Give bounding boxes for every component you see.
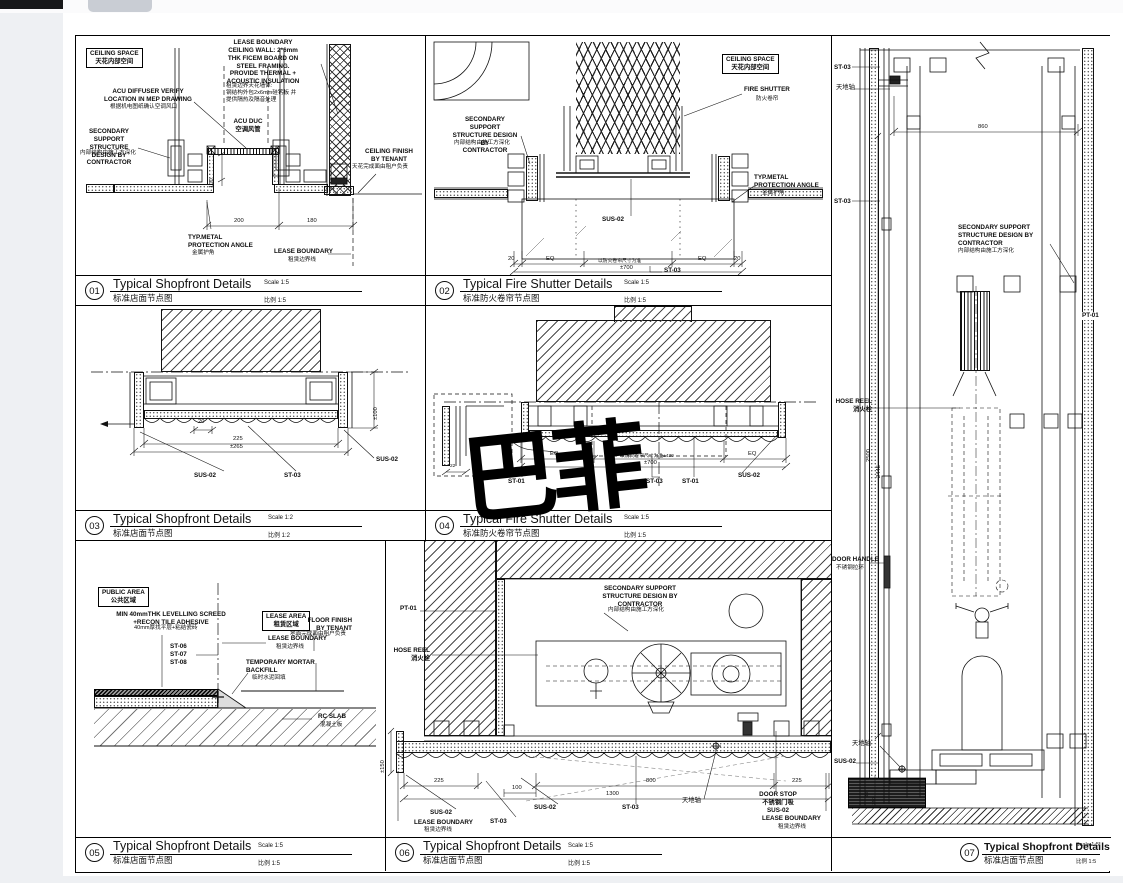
panel-03-title-cn: 标准店面节点图 <box>113 527 173 539</box>
panel-02-scale: Scale 1:5 <box>624 280 649 286</box>
detail-panel-02: CEILING SPACE 天花内部空间 FIRE SHUTTER 防火卷帘 S… <box>426 36 831 306</box>
label-rc-slab-cn: 混凝土板 <box>320 722 342 729</box>
panel-05-scale-cn: 比例 1:5 <box>258 858 280 867</box>
label-rc-slab: RC SLAB <box>318 713 346 721</box>
panel-02-drawing: CEILING SPACE 天花内部空间 FIRE SHUTTER 防火卷帘 S… <box>426 36 831 305</box>
panel-01-titlebar: 01 Typical Shopfront Details 标准店面节点图 Sca… <box>76 275 425 305</box>
label-fire-shutter: FIRE SHUTTER <box>744 86 790 94</box>
label-lease-boundary-right-cn: 租赁边界线 <box>778 824 806 831</box>
label-lease-wall-note-cn: 租赁边界天花墙体: 钢结构外包2x6mm硅钙板 并 提供隔热及隔音处理 <box>226 83 326 104</box>
dim-40: 40 <box>865 792 870 797</box>
label-st-01-right: ST-01 <box>682 478 699 486</box>
browser-chrome-remnant <box>0 0 1123 13</box>
panel-05-title: Typical Shopfront Details <box>113 839 251 853</box>
panel-07-scale: Scale 1:5 <box>1076 842 1099 848</box>
panel-03-scale: Scale 1:2 <box>268 515 293 521</box>
label-st-03: ST-03 <box>664 267 681 275</box>
label-sus-02-far-left: SUS-02 <box>430 809 452 817</box>
panel-06-titlebar: 06 Typical Shopfront Details 标准店面节点图 Sca… <box>386 837 831 871</box>
label-temporary-mortar-cn: 临时水泥回填 <box>252 675 286 682</box>
panel-02-title-cn: 标准防火卷帘节点图 <box>463 292 540 304</box>
label-secondary-support-cn: 内部结构由施工方深化 <box>958 248 1014 255</box>
panel-02-title: Typical Fire Shutter Details <box>463 277 612 291</box>
detail-panel-06: PT-01 HOSE REEL 消火栓 SECONDARY SUPPORT ST… <box>386 541 831 871</box>
panel-01-number: 01 <box>85 281 104 300</box>
panel-06-scale: Scale 1:5 <box>568 843 593 849</box>
label-pivot: 天地轴 <box>682 797 701 805</box>
panel-07-titlebar: 07 Typical Shopfront Details 标准店面节点图 Sca… <box>832 837 1111 871</box>
panel-05-titlebar: 05 Typical Shopfront Details 标准店面节点图 Sca… <box>76 837 385 871</box>
dim-1300: 1300 <box>606 791 619 797</box>
label-secondary-support-cn: 内部结构由施工方深化 <box>454 140 510 147</box>
panel-06-title: Typical Shopfront Details <box>423 839 561 853</box>
label-lease-boundary-cn: 租赁边界线 <box>276 644 304 651</box>
panel-01-title: Typical Shopfront Details <box>113 277 251 291</box>
label-acu-diffuser-cn: 根据机电图纸确认空调风口 <box>110 104 177 111</box>
detail-panel-05: PUBLIC AREA 公共区域 LEASE AREA 租赁区域 MIN 40m… <box>76 541 386 871</box>
dim-total-700: ±700 <box>644 460 657 466</box>
dim-inset-22: 22 <box>450 464 455 469</box>
detail-panel-07: ST-03 天地轴 ST-03 SECONDARY SUPPORT STRUCT… <box>831 36 1111 871</box>
panel-04-number: 04 <box>435 516 454 535</box>
label-ceiling-finish-cn: 天花完成面由租户负责 <box>352 164 408 171</box>
dim-225-right: 225 <box>792 778 802 784</box>
label-door-stop: DOOR STOP 不锈钢门吸 SUS-02 <box>746 791 810 815</box>
detail-panel-01: CEILING SPACE 天花内部空间 LEASE BOUNDARY CEIL… <box>76 36 426 306</box>
dim-20: 20 <box>198 419 204 425</box>
dim-265: ±265 <box>230 444 243 450</box>
label-sus-02-left: SUS-02 <box>534 804 556 812</box>
label-typ-metal-angle-cn: 金属护角 <box>762 190 784 197</box>
dim-20-right: 20 <box>734 256 740 262</box>
label-temporary-mortar: TEMPORARY MORTAR BACKFILL <box>246 659 315 675</box>
label-st-03-left: ST-03 <box>490 818 507 826</box>
panel-03-drawing: SUS-02 ST-03 SUS-02 20 225 ±265 ±100 <box>76 306 425 540</box>
dim-860: 860 <box>978 124 988 130</box>
label-lease-boundary-ceiling-wall: LEASE BOUNDARY CEILING WALL: 2*6mm THK F… <box>204 39 322 86</box>
panel-02-titlebar: 02 Typical Fire Shutter Details 标准防火卷帘节点… <box>426 275 831 305</box>
label-secondary-support: SECONDARY SUPPORT STRUCTURE DESIGN BY CO… <box>78 128 140 167</box>
label-st-03-center: ST-03 <box>622 804 639 812</box>
dim-200: 200 <box>234 218 244 224</box>
cad-detail-sheet-page: { "watermark": "巴菲", "shared": { "sus02"… <box>0 0 1123 883</box>
panel-05-number: 05 <box>85 843 104 862</box>
dim-2500: 2500 <box>866 449 872 462</box>
label-st-03-mid: ST-03 <box>834 198 851 206</box>
label-typ-metal-angle: TYP.METAL PROTECTION ANGLE <box>188 234 253 250</box>
label-sus-02: SUS-02 <box>738 472 760 480</box>
panel-05-title-cn: 标准店面节点图 <box>113 854 173 866</box>
label-st-03-top: ST-03 <box>834 64 851 72</box>
label-secondary-support-cn: 内部结构由施工方深化 <box>80 150 136 157</box>
label-ceiling-space: CEILING SPACE 天花内部空间 <box>722 54 779 74</box>
label-public-area: PUBLIC AREA 公共区域 <box>98 587 149 607</box>
dim-eq-right: EQ <box>748 451 756 457</box>
dim-shutter-note: 以防火卷帘尺寸为准 <box>598 257 641 264</box>
label-sus-02: SUS-02 <box>834 758 856 766</box>
label-pt-01: PT-01 <box>400 605 417 613</box>
dim-225: 225 <box>233 436 243 442</box>
window-control-strip <box>0 0 63 9</box>
label-lease-boundary: LEASE BOUNDARY <box>274 248 333 256</box>
browser-tab[interactable] <box>88 0 152 12</box>
calligraphy-watermark: 巴菲 <box>457 416 646 530</box>
dim-100: ±100 <box>373 407 379 420</box>
label-hose-reel: HOSE REEL 消火栓 <box>832 398 872 414</box>
panel-05-scale: Scale 1:5 <box>258 843 283 849</box>
panel-06-scale-cn: 比例 1:5 <box>568 858 590 867</box>
label-floor-finish-cn: 地面完成面由租户负责 <box>290 631 346 638</box>
label-acu-diffuser: ACU DIFFUSER VERIFY LOCATION IN MEP DRAW… <box>102 88 194 104</box>
label-secondary-support-cn: 内部结构由施工方深化 <box>608 607 664 614</box>
dim-eq-left: EQ <box>546 256 554 262</box>
label-st-03: ST-03 <box>284 472 301 480</box>
label-hose-reel: HOSE REEL 消火栓 <box>386 647 430 663</box>
label-lease-boundary-left: LEASE BOUNDARY <box>414 819 473 827</box>
panel-07-drawing: ST-03 天地轴 ST-03 SECONDARY SUPPORT STRUCT… <box>832 36 1111 871</box>
label-secondary-support: SECONDARY SUPPORT STRUCTURE DESIGN BY CO… <box>584 585 696 609</box>
panel-06-number: 06 <box>395 843 414 862</box>
panel-05-drawing: PUBLIC AREA 公共区域 LEASE AREA 租赁区域 MIN 40m… <box>76 541 385 871</box>
panel-07-number: 07 <box>960 843 979 862</box>
label-fire-shutter-cn: 防火卷帘 <box>756 96 778 103</box>
dim-eq-right: EQ <box>698 256 706 262</box>
label-ceiling-finish: CEILING FINISH BY TENANT <box>358 148 420 164</box>
dim-180: 180 <box>307 218 317 224</box>
label-st-03: ST-03 <box>646 478 663 486</box>
panel-03-titlebar: 03 Typical Shopfront Details 标准店面节点图 Sca… <box>76 510 425 540</box>
label-pivot-top: 天地轴 <box>836 84 855 92</box>
label-acu-duct: ACU DUC 空调风管 <box>226 118 270 134</box>
label-lease-boundary-cn: 租赁边界线 <box>288 257 316 264</box>
label-st-06-07-08: ST-06 ST-07 ST-08 <box>170 643 187 667</box>
label-secondary-support: SECONDARY SUPPORT STRUCTURE DESIGN BY CO… <box>450 116 520 155</box>
label-typ-metal-angle-cn: 金属护角 <box>192 250 214 257</box>
panel-07-title-cn: 标准店面节点图 <box>984 854 1044 866</box>
panel-02-scale-cn: 比例 1:5 <box>624 295 646 304</box>
panel-01-title-cn: 标准店面节点图 <box>113 292 173 304</box>
dim-total-700: ±700 <box>620 265 633 271</box>
panel-06-title-cn: 标准店面节点图 <box>423 854 483 866</box>
label-ceiling-space: CEILING SPACE 天花内部空间 <box>86 48 143 68</box>
detail-panel-03: SUS-02 ST-03 SUS-02 20 225 ±265 ±100 03 … <box>76 306 426 541</box>
dim-20-left: 20 <box>508 256 514 262</box>
dim-100: 100 <box>512 785 522 791</box>
dim-150: ±150 <box>380 760 386 773</box>
label-secondary-support: SECONDARY SUPPORT STRUCTURE DESIGN BY CO… <box>958 224 1050 248</box>
panel-06-drawing: PT-01 HOSE REEL 消火栓 SECONDARY SUPPORT ST… <box>386 541 831 871</box>
dim-100: 100 <box>209 178 215 188</box>
panel-03-title: Typical Shopfront Details <box>113 512 251 526</box>
label-pivot-bottom: 天地轴 <box>852 740 871 748</box>
panel-01-scale-cn: 比例 1:5 <box>264 295 286 304</box>
panel-03-number: 03 <box>85 516 104 535</box>
label-lease-boundary-left-cn: 租赁边界线 <box>424 827 452 834</box>
dim-150: 150 <box>872 797 877 805</box>
label-sus-02-left: SUS-02 <box>194 472 216 480</box>
label-pt-01: PT-01 <box>1082 312 1099 320</box>
panel-01-drawing: CEILING SPACE 天花内部空间 LEASE BOUNDARY CEIL… <box>76 36 425 305</box>
label-door-handle-cn: 不锈钢拉环 <box>836 565 864 572</box>
label-door-handle: DOOR HANDLE <box>832 556 879 564</box>
dim-2445: 2445 <box>876 465 882 478</box>
panel-02-number: 02 <box>435 281 454 300</box>
label-lease-boundary-right: LEASE BOUNDARY <box>762 815 821 823</box>
label-sus-02: SUS-02 <box>602 216 624 224</box>
panel-07-scale-cn: 比例 1:5 <box>1076 857 1096 865</box>
label-typ-metal-angle: TYP.METAL PROTECTION ANGLE <box>754 174 819 190</box>
label-sus-02-right: SUS-02 <box>376 456 398 464</box>
panel-01-scale: Scale 1:5 <box>264 280 289 286</box>
label-levelling-screed-cn: 40mm厚找平层+粘结瓷砖 <box>134 625 198 632</box>
dim-800: 800 <box>646 778 656 784</box>
panel-04-scale-cn: 比例 1:5 <box>624 530 646 539</box>
dim-225-left: 225 <box>434 778 444 784</box>
panel-03-scale-cn: 比例 1:2 <box>268 530 290 539</box>
